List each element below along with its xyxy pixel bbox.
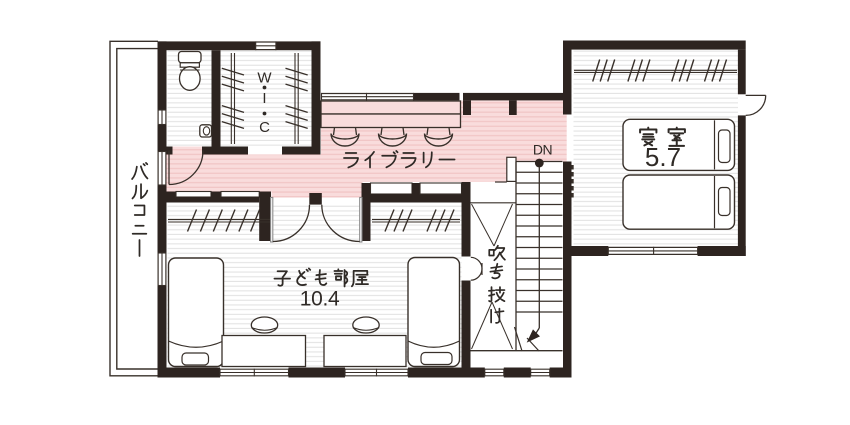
svg-text:DN: DN [533, 142, 552, 158]
svg-text:I: I [262, 90, 266, 107]
svg-text:W: W [257, 70, 272, 87]
svg-text:5.7: 5.7 [645, 142, 681, 172]
svg-text:10.4: 10.4 [300, 288, 340, 311]
svg-text:C: C [259, 119, 270, 136]
